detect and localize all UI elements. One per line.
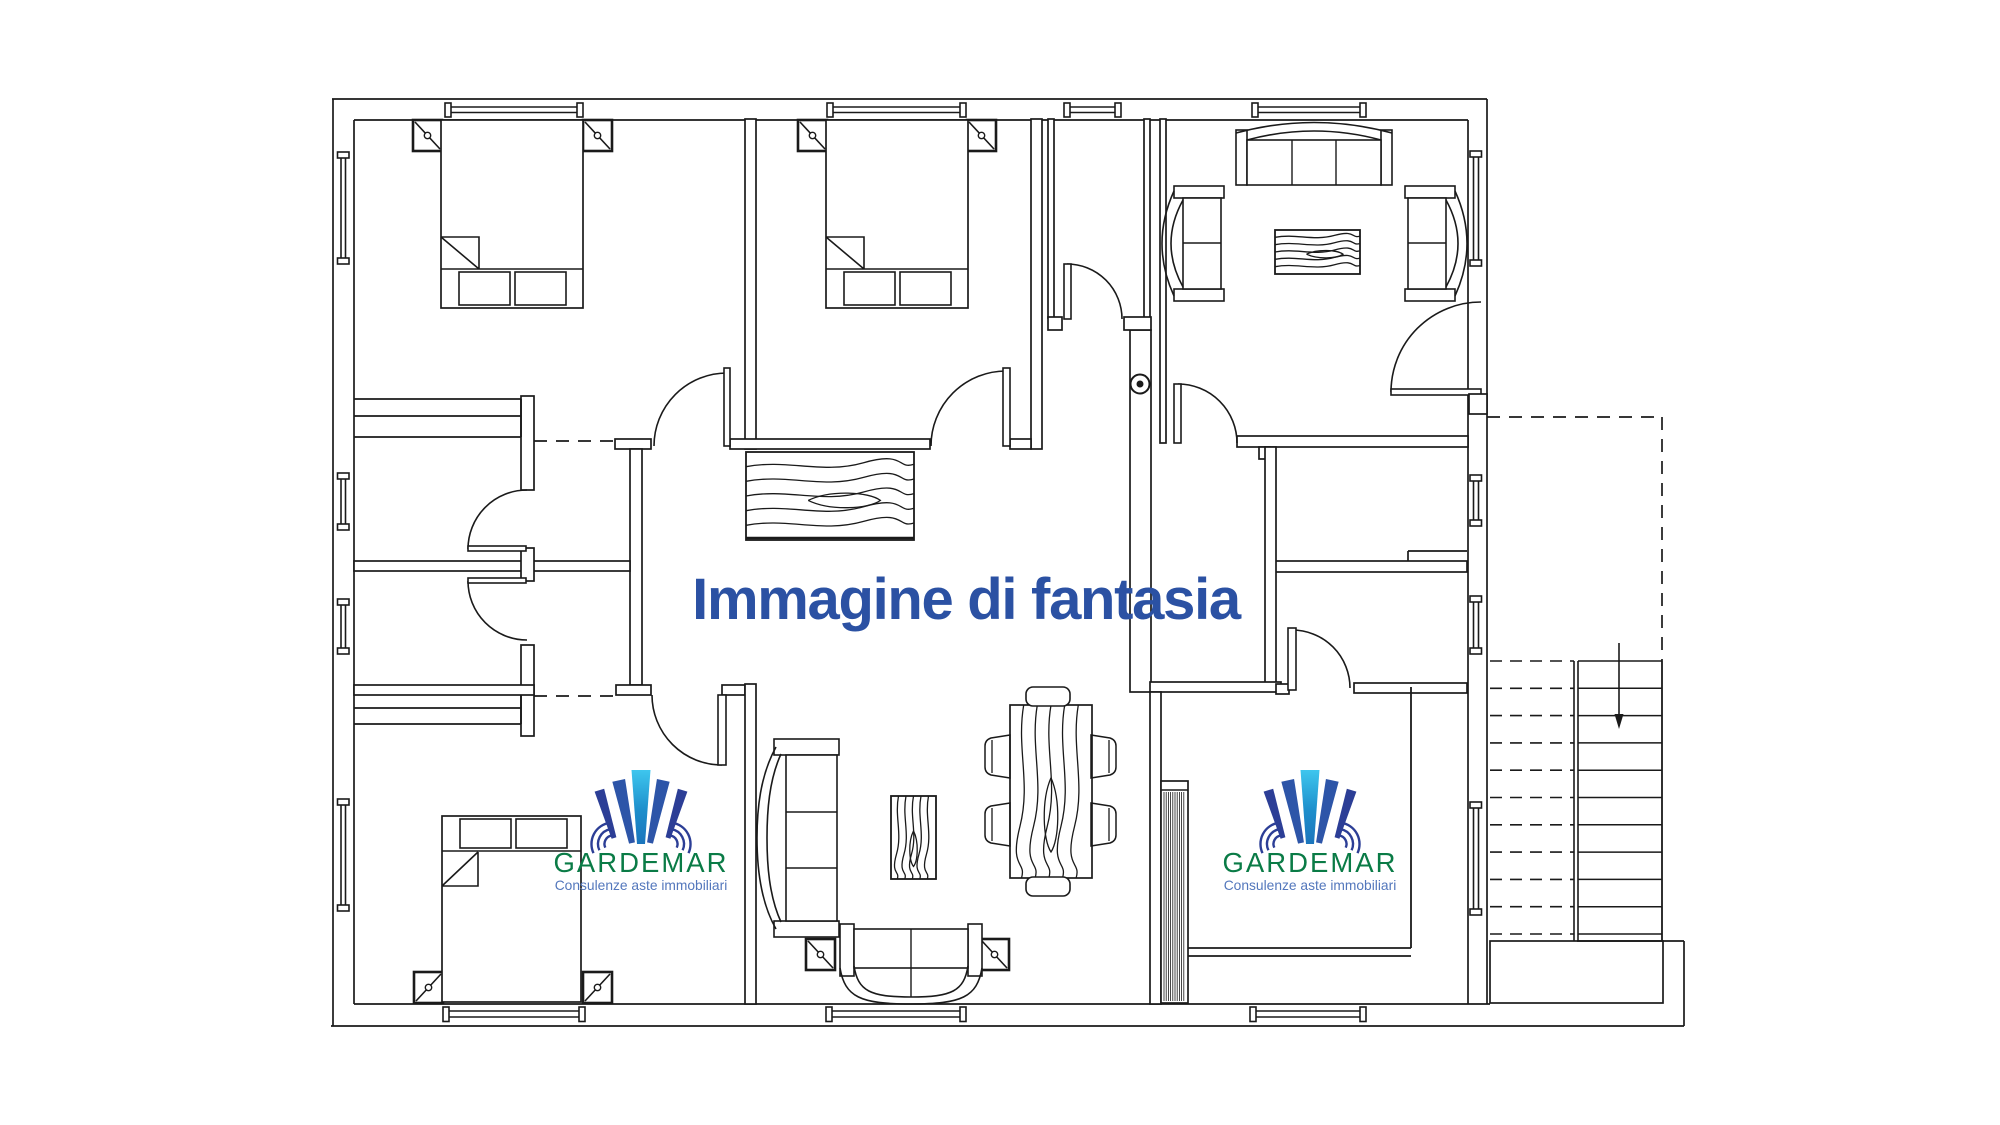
svg-text:Consulenze aste immobiliari: Consulenze aste immobiliari [1224, 878, 1397, 893]
svg-text:Consulenze aste immobiliari: Consulenze aste immobiliari [555, 878, 728, 893]
svg-text:Immagine di fantasia: Immagine di fantasia [692, 567, 1242, 632]
svg-text:GARDEMAR: GARDEMAR [554, 847, 729, 878]
svg-text:GARDEMAR: GARDEMAR [1223, 847, 1398, 878]
